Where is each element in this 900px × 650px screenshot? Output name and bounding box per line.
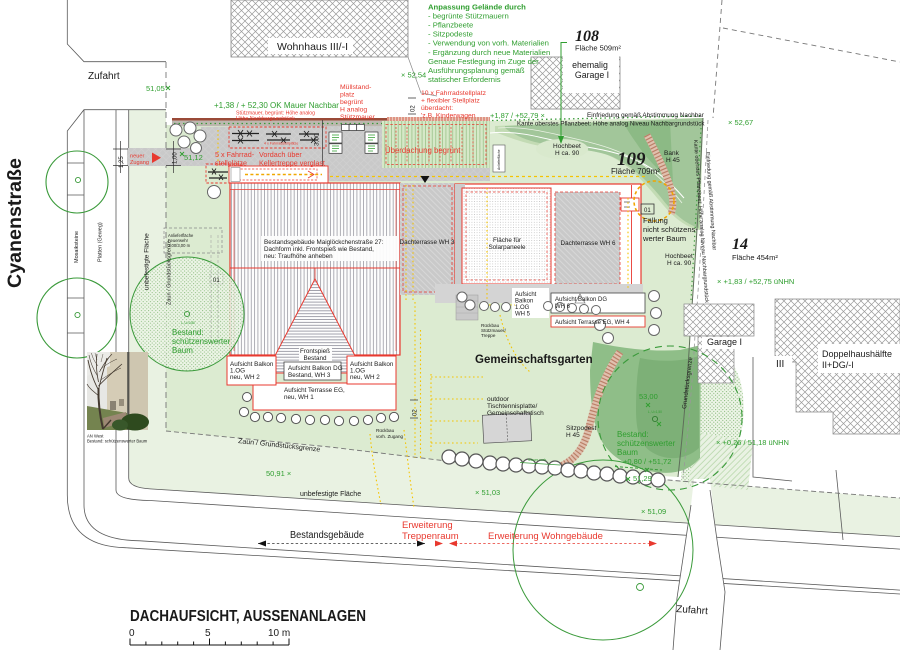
svg-text:Bestandsgebäude Maiglöckchenst: Bestandsgebäude Maiglöckchenstraße 27: bbox=[264, 239, 384, 246]
svg-text:Zufahrt: Zufahrt bbox=[88, 71, 120, 82]
svg-text:Fläche für: Fläche für bbox=[493, 237, 521, 244]
svg-text:10 x Fahrradstellplatz: 10 x Fahrradstellplatz bbox=[421, 90, 487, 97]
svg-text:H analog: H analog bbox=[340, 107, 367, 114]
svg-text:schützenswerter: schützenswerter bbox=[617, 439, 676, 448]
svg-text:- Ergänzung durch neue Materia: - Ergänzung durch neue Materialien bbox=[428, 48, 550, 57]
svg-text:outdoor: outdoor bbox=[487, 396, 510, 403]
svg-text:Fläche 454m²: Fläche 454m² bbox=[732, 253, 778, 262]
svg-text:50,91 ×: 50,91 × bbox=[266, 469, 291, 478]
svg-text:schützenswerter: schützenswerter bbox=[172, 337, 231, 346]
svg-text:Höhe Nachbargrundstück: Höhe Nachbargrundstück bbox=[236, 116, 295, 122]
svg-text:51,05: 51,05 bbox=[146, 84, 165, 93]
svg-text:Bestand: Bestand bbox=[303, 355, 327, 362]
svg-text:werter Baum: werter Baum bbox=[642, 234, 686, 243]
svg-text:Fällung: Fällung bbox=[643, 216, 668, 225]
svg-text:- Pflanzbeete: - Pflanzbeete bbox=[428, 21, 473, 30]
svg-text:Kante oberstes Pflanzbeet: Höh: Kante oberstes Pflanzbeet: Höhe analog N… bbox=[517, 121, 705, 128]
svg-text:- Sitzpodeste: - Sitzpodeste bbox=[428, 30, 473, 39]
svg-text:Bestandsgebäude: Bestandsgebäude bbox=[290, 530, 364, 541]
svg-text:Cyanenstraße: Cyanenstraße bbox=[5, 158, 26, 288]
svg-text:Gemeinschaftsgarten: Gemeinschaftsgarten bbox=[475, 354, 593, 366]
svg-text:Baum: Baum bbox=[172, 346, 193, 355]
svg-text:Treppenraum: Treppenraum bbox=[402, 531, 459, 542]
svg-text:Hochbeet: Hochbeet bbox=[665, 253, 693, 260]
svg-text:14: 14 bbox=[732, 236, 748, 253]
svg-text:5: 5 bbox=[205, 628, 211, 639]
svg-text:Aufsicht Balkon DG: Aufsicht Balkon DG bbox=[288, 365, 343, 372]
svg-text:Garage I: Garage I bbox=[575, 70, 609, 80]
svg-text:H ca. 90: H ca. 90 bbox=[667, 260, 692, 267]
svg-text:- Verwendung von vorh. Materia: - Verwendung von vorh. Materialien bbox=[428, 39, 549, 48]
svg-text:× 52,54: × 52,54 bbox=[401, 71, 426, 80]
svg-text:+ flexibler Stellplatz: + flexibler Stellplatz bbox=[421, 98, 480, 105]
svg-text:Bestand:: Bestand: bbox=[172, 328, 204, 337]
svg-text:4 x Fahrradstellplätze: 4 x Fahrradstellplätze bbox=[264, 142, 298, 146]
svg-text:Dachform inkl. Frontspieß wie: Dachform inkl. Frontspieß wie Bestand, bbox=[264, 246, 374, 253]
svg-text:platz: platz bbox=[340, 92, 355, 99]
svg-text:01: 01 bbox=[644, 208, 651, 214]
svg-text:Solarpaneele: Solarpaneele bbox=[488, 244, 526, 251]
svg-text:10 m: 10 m bbox=[268, 628, 290, 639]
svg-text:× +0,26 / 51,18 üNHN: × +0,26 / 51,18 üNHN bbox=[716, 438, 789, 447]
svg-text:Müllstand-: Müllstand- bbox=[340, 84, 371, 91]
svg-text:Treppe: Treppe bbox=[481, 333, 496, 338]
svg-text:vorh. Zugang: vorh. Zugang bbox=[376, 434, 404, 439]
svg-text:Dachterrasse WH 3: Dachterrasse WH 3 bbox=[400, 239, 455, 246]
svg-text:Tischtennisplatte/: Tischtennisplatte/ bbox=[487, 403, 538, 410]
svg-text:× +1,83 / +52,75 üNHN: × +1,83 / +52,75 üNHN bbox=[717, 277, 794, 286]
svg-text:Anlieferfläche: Anlieferfläche bbox=[497, 149, 501, 170]
svg-text:neu: Traufhöhe anheben: neu: Traufhöhe anheben bbox=[264, 253, 333, 260]
svg-text:× 51,09: × 51,09 bbox=[641, 507, 666, 516]
svg-text:H 45: H 45 bbox=[566, 432, 580, 439]
svg-text:Aufsicht Terrasse EG, WH 4: Aufsicht Terrasse EG, WH 4 bbox=[555, 320, 630, 326]
svg-text:neu, WH 2: neu, WH 2 bbox=[230, 374, 260, 381]
svg-text:53,00: 53,00 bbox=[639, 392, 658, 401]
svg-text:Fläche 709m²: Fläche 709m² bbox=[611, 167, 660, 176]
svg-text:3,00: 3,00 bbox=[314, 133, 321, 146]
svg-text:Genaue Festlegung im Zuge der: Genaue Festlegung im Zuge der bbox=[428, 57, 539, 66]
svg-text:WH 6: WH 6 bbox=[555, 304, 571, 310]
svg-text:Ausführungsplanung gemäß: Ausführungsplanung gemäß bbox=[428, 66, 525, 75]
svg-text:Anpassung Gelände durch: Anpassung Gelände durch bbox=[428, 3, 526, 12]
svg-text:Überdachung begrünt: Überdachung begrünt bbox=[385, 146, 461, 155]
svg-text:Aufsicht: Aufsicht bbox=[515, 292, 537, 298]
svg-text:Mauer vorh.: Mauer vorh. bbox=[528, 458, 547, 462]
svg-text:01: 01 bbox=[213, 278, 220, 284]
svg-text:DACHAUFSICHT, AUSSENANLAGEN: DACHAUFSICHT, AUSSENANLAGEN bbox=[130, 608, 366, 625]
svg-text:Garage I: Garage I bbox=[707, 337, 742, 347]
svg-text:Einfriedung gemäß Abstimmung N: Einfriedung gemäß Abstimmung Nachbar bbox=[587, 112, 705, 119]
svg-text:- begrünte Stützmauern: - begrünte Stützmauern bbox=[428, 12, 509, 21]
svg-text:Bestand: schützenswerter Baum: Bestand: schützenswerter Baum bbox=[87, 439, 148, 444]
svg-text:Erweiterung: Erweiterung bbox=[402, 520, 453, 531]
svg-text:+1,38 / + 52,30 OK Mauer Nachb: +1,38 / + 52,30 OK Mauer Nachbar bbox=[214, 101, 339, 110]
svg-text:Aufsicht Balkon DG: Aufsicht Balkon DG bbox=[555, 297, 607, 303]
svg-text:0: 0 bbox=[129, 628, 135, 639]
svg-text:Balkon: Balkon bbox=[515, 299, 533, 305]
svg-text:Kellertreppe verglast: Kellertreppe verglast bbox=[259, 159, 325, 168]
svg-text:108: 108 bbox=[575, 28, 599, 45]
svg-text:stellplätze: stellplätze bbox=[215, 159, 247, 168]
svg-text:III: III bbox=[776, 359, 784, 370]
svg-text:Mosaiksteine: Mosaiksteine bbox=[74, 231, 80, 263]
svg-text:Bank: Bank bbox=[664, 150, 680, 157]
svg-text:+0,80 / +51,72: +0,80 / +51,72 bbox=[623, 457, 671, 466]
svg-text:H 45: H 45 bbox=[666, 157, 680, 164]
svg-text:02: 02 bbox=[411, 105, 417, 112]
svg-text:ehemalig: ehemalig bbox=[572, 60, 608, 70]
svg-text:Fläche 509m²: Fläche 509m² bbox=[575, 44, 621, 53]
svg-text:02: 02 bbox=[413, 409, 419, 416]
svg-text:unbefestigte Fläche: unbefestigte Fläche bbox=[144, 233, 151, 290]
svg-text:Zaun / Grundstücksgrenze: Zaun / Grundstücksgrenze bbox=[167, 240, 173, 305]
svg-text:× 52,67: × 52,67 bbox=[728, 118, 753, 127]
svg-text:H ca. 90: H ca. 90 bbox=[555, 150, 580, 157]
svg-text:L, U=0,80: L, U=0,80 bbox=[181, 321, 195, 325]
svg-text:Zufahrt: Zufahrt bbox=[676, 604, 709, 617]
svg-text:unbefestigte Fläche: unbefestigte Fläche bbox=[300, 491, 361, 498]
svg-text:begrünt: begrünt bbox=[340, 99, 363, 106]
svg-text:Sitzpodest: Sitzpodest bbox=[566, 425, 597, 432]
svg-text:1,00: 1,00 bbox=[173, 152, 179, 164]
svg-text:Doppelhaushälfte: Doppelhaushälfte bbox=[822, 349, 892, 359]
svg-text:L, U=1,50: L, U=1,50 bbox=[648, 410, 662, 414]
svg-text:WH 5: WH 5 bbox=[515, 312, 531, 318]
svg-text:Aufsicht Terrasse EG,: Aufsicht Terrasse EG, bbox=[284, 387, 345, 394]
svg-text:Rückbau: Rückbau bbox=[376, 428, 395, 433]
svg-text:51,29: 51,29 bbox=[633, 474, 652, 483]
svg-text:Wohnhaus III/-I: Wohnhaus III/-I bbox=[277, 41, 348, 53]
svg-text:überdacht:: überdacht: bbox=[421, 105, 453, 112]
svg-text:II+DG/-I: II+DG/-I bbox=[822, 360, 854, 370]
svg-text:+1,87 / +52,79 ×: +1,87 / +52,79 × bbox=[490, 111, 545, 120]
svg-text:Dachterrasse WH 6: Dachterrasse WH 6 bbox=[561, 240, 616, 247]
svg-text:Baum: Baum bbox=[617, 448, 638, 457]
svg-text:neuer: neuer bbox=[130, 154, 144, 160]
svg-text:neu, WH 1: neu, WH 1 bbox=[284, 394, 314, 401]
svg-text:1.OG: 1.OG bbox=[515, 305, 530, 311]
svg-text:Bestand:: Bestand: bbox=[617, 430, 649, 439]
svg-text:Frontspieß: Frontspieß bbox=[300, 348, 330, 355]
svg-text:'z.B. Kinderwagen: 'z.B. Kinderwagen bbox=[421, 113, 476, 120]
svg-text:nicht schützens-: nicht schützens- bbox=[643, 225, 698, 234]
svg-text:Gemeinschaftstisch: Gemeinschaftstisch bbox=[487, 410, 544, 417]
svg-text:51,12: 51,12 bbox=[184, 153, 203, 162]
svg-text:neu, WH 2: neu, WH 2 bbox=[350, 374, 380, 381]
svg-text:statischer Erfordernis: statischer Erfordernis bbox=[428, 75, 501, 84]
svg-text:Erweiterung Wohngebäude: Erweiterung Wohngebäude bbox=[488, 531, 603, 542]
svg-text:1,25: 1,25 bbox=[119, 156, 125, 168]
svg-text:Bestand, WH 3: Bestand, WH 3 bbox=[288, 372, 331, 379]
svg-text:Stützmauer: Stützmauer bbox=[340, 114, 375, 121]
svg-text:Platten (Geweg): Platten (Geweg) bbox=[98, 222, 104, 262]
svg-text:× 51,03: × 51,03 bbox=[475, 488, 500, 497]
svg-text:2,00/3,00 m: 2,00/3,00 m bbox=[168, 243, 191, 248]
svg-text:Zugang: Zugang bbox=[130, 160, 149, 166]
svg-text:Hochbeet: Hochbeet bbox=[553, 143, 581, 150]
